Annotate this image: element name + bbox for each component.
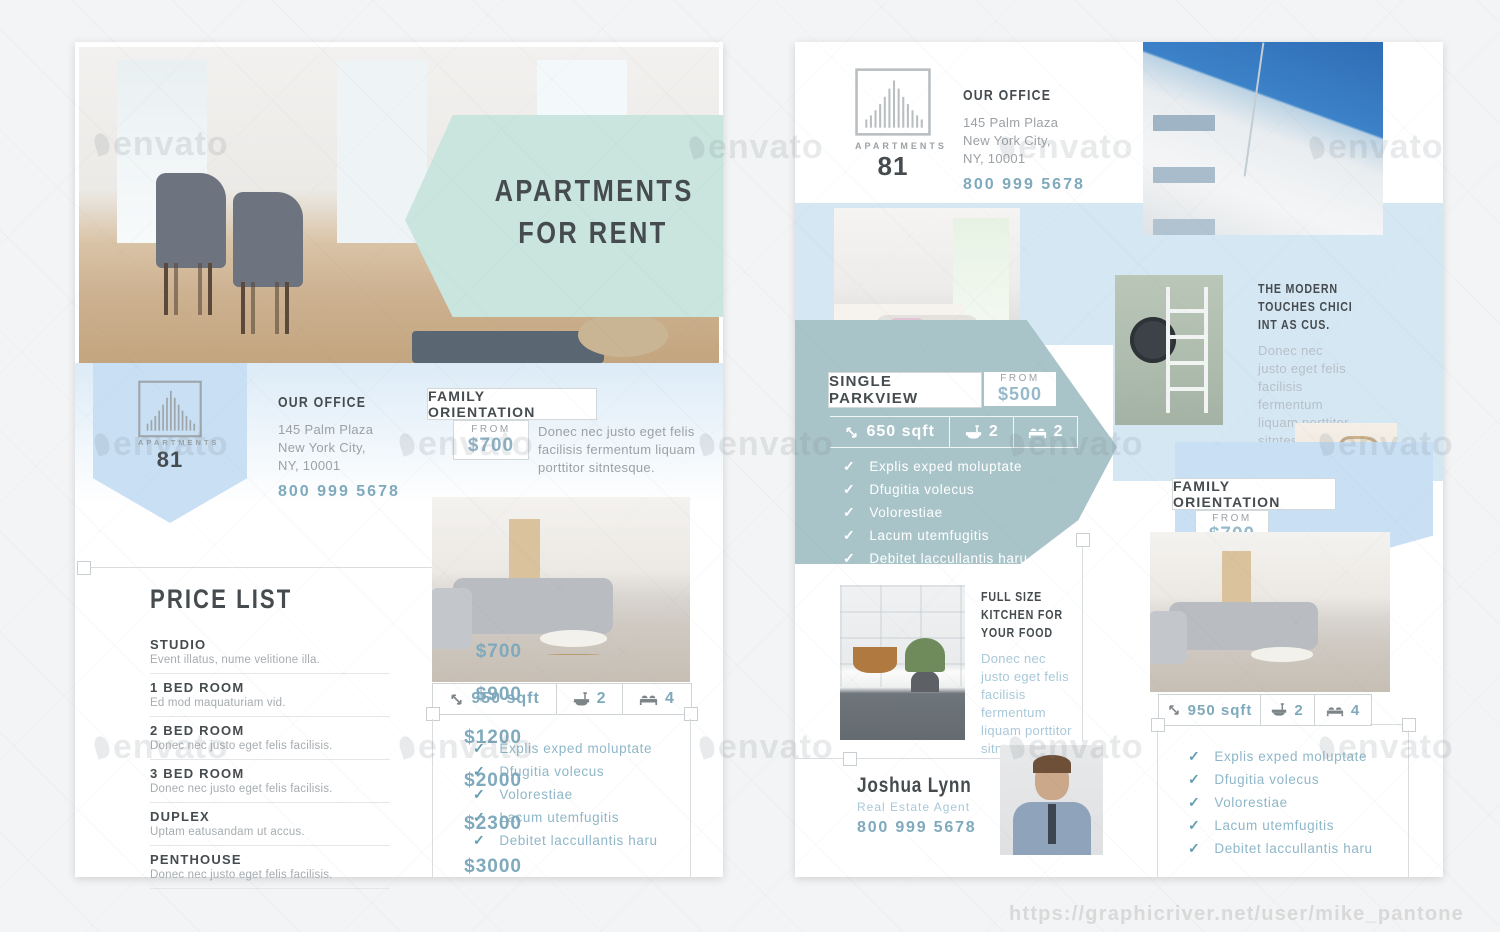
from-price-badge: FROM $700 (453, 420, 529, 460)
office-address-line: New York City, (278, 439, 418, 457)
single-parkview-title: SINGLE PARKVIEW (829, 373, 981, 407)
specs-bar: 950 sqft 2 4 (1158, 694, 1372, 726)
apartments-building-icon (138, 380, 202, 438)
price-row: 2 BED ROOM Donec nec justo eget felis fa… (150, 717, 390, 760)
area-value: 650 sqft (866, 423, 934, 441)
family-orientation-box: FAMILY ORIENTATION (427, 388, 597, 420)
kitchen-body: Donec nec justo eget felis facilisis fer… (981, 650, 1073, 758)
brand-number: 81 (138, 447, 202, 473)
connector-square (843, 752, 857, 766)
connector-square (1402, 718, 1416, 732)
checklist-item: ✓Volorestiae (843, 504, 1028, 521)
left-flyer-page: APARTMENTS FOR RENT APARTMENTS 81 (75, 42, 723, 877)
chair-decor (156, 173, 226, 268)
frame-line (85, 567, 432, 568)
bed-spec: 4 (623, 684, 691, 714)
connector-square (1076, 533, 1090, 547)
area-spec: 650 sqft (830, 417, 950, 447)
chair-decor (233, 192, 303, 287)
bathtub-icon (1271, 703, 1287, 717)
feature-checklist-slate: ✓Explis exped moluptate ✓Dfugitia volecu… (843, 458, 1028, 573)
checklist-item: ✓Explis exped moluptate (843, 458, 1028, 475)
office-info: OUR OFFICE 145 Palm Plaza New York City,… (963, 87, 1113, 194)
frame-line (1157, 730, 1158, 877)
expand-arrow-icon (844, 425, 859, 440)
area-spec: 950 sqft (1159, 695, 1261, 725)
table-decor (540, 630, 607, 647)
frame-line (1408, 730, 1409, 877)
hero-title: APARTMENTS FOR RENT (473, 170, 713, 254)
feature-checklist: ✓Explis exped moluptate ✓Dfugitia volecu… (473, 740, 658, 855)
bath-spec: 2 (950, 417, 1014, 447)
check-icon: ✓ (843, 527, 855, 544)
brand-name: APARTMENTS (855, 141, 931, 151)
agent-info: Joshua Lynn Real Estate Agent 800 999 56… (857, 774, 1017, 837)
checklist-item: ✓Debitet laccullantis haru (843, 550, 1028, 567)
bath-count: 2 (989, 423, 999, 441)
checklist-item: ✓Volorestiae (1188, 794, 1373, 811)
bath-spec: 2 (557, 684, 623, 714)
bed-icon (1326, 704, 1344, 717)
expand-arrow-icon (1167, 703, 1181, 717)
connector-square (77, 561, 91, 575)
kitchen-text-block: FULL SIZE KITCHEN FOR YOUR FOOD Donec ne… (981, 588, 1081, 758)
check-icon: ✓ (1188, 817, 1200, 834)
checklist-item: ✓Dfugitia volecus (843, 481, 1028, 498)
family-description: Donec nec justo eget felis facilisis fer… (538, 423, 710, 477)
area-value: 950 sqft (1188, 702, 1253, 719)
office-phone: 800 999 5678 (278, 483, 418, 501)
preview-canvas: APARTMENTS FOR RENT APARTMENTS 81 (0, 0, 1500, 932)
check-icon: ✓ (843, 458, 855, 475)
family-orientation-box: FAMILY ORIENTATION (1172, 478, 1336, 510)
price-row: STUDIO Event illatus, nume velitione ill… (150, 631, 390, 674)
rug-decor (412, 331, 604, 363)
check-icon: ✓ (843, 481, 855, 498)
from-label: FROM (1000, 373, 1039, 384)
price-row: 3 BED ROOM Donec nec justo eget felis fa… (150, 760, 390, 803)
office-address-line: NY, 10001 (278, 457, 418, 475)
family-orientation-title: FAMILY ORIENTATION (1173, 478, 1335, 510)
checklist-item: ✓Dfugitia volecus (1188, 771, 1373, 788)
agent-role: Real Estate Agent (857, 800, 1017, 814)
frame-line (1082, 539, 1083, 742)
hero-title-line1: APARTMENTS (495, 170, 692, 212)
frame-line (690, 719, 691, 877)
office-address-line: New York City, (963, 132, 1113, 150)
office-heading: OUR OFFICE (278, 394, 366, 411)
check-icon: ✓ (843, 550, 855, 567)
apartment-interior-photo (432, 497, 690, 682)
from-price: $500 (998, 384, 1042, 405)
bath-count: 2 (597, 690, 607, 708)
office-address-line: 145 Palm Plaza (278, 421, 418, 439)
right-flyer-page: APARTMENTS 81 OUR OFFICE 145 Palm Plaza … (795, 42, 1443, 877)
specs-bar: 950 sqft 2 4 (432, 683, 692, 715)
building-photo (1143, 42, 1383, 235)
hero-title-line2: FOR RENT (495, 212, 692, 254)
brand-number: 81 (855, 151, 931, 182)
agent-photo (1000, 745, 1103, 855)
author-credit-link[interactable]: https://graphicriver.net/user/mike_panto… (1009, 903, 1464, 926)
checklist-item: ✓Lacum utemfugitis (843, 527, 1028, 544)
office-heading: OUR OFFICE (963, 87, 1051, 104)
check-icon: ✓ (843, 504, 855, 521)
agent-phone: 800 999 5678 (857, 819, 1017, 837)
bath-spec: 2 (1261, 695, 1315, 725)
bed-icon (1028, 425, 1047, 439)
price-row: 1 BED ROOM Ed mod maquaturiam vid. $900 (150, 674, 390, 717)
brand-name: APARTMENTS (138, 438, 202, 447)
apartment-interior-photo (1150, 532, 1390, 692)
from-price-badge: FROM $500 (984, 372, 1056, 406)
clock-shelf-photo (1115, 275, 1223, 425)
checklist-item: ✓Debitet laccullantis haru (1188, 840, 1373, 857)
office-address-line: NY, 10001 (963, 150, 1113, 168)
family-orientation-title: FAMILY ORIENTATION (428, 388, 596, 420)
office-info: OUR OFFICE 145 Palm Plaza New York City,… (278, 394, 418, 501)
bed-count: 4 (665, 690, 675, 708)
ladder-shelf-decor (1166, 287, 1208, 413)
price-row: PENTHOUSE Donec nec justo eget felis fac… (150, 846, 390, 889)
single-parkview-box: SINGLE PARKVIEW (828, 372, 982, 408)
bed-count: 2 (1054, 423, 1064, 441)
bed-icon (639, 692, 658, 706)
check-icon: ✓ (1188, 840, 1200, 857)
brand-logo-large: APARTMENTS 81 (855, 67, 931, 182)
pouf-decor (578, 313, 668, 357)
sofa-decor (453, 578, 613, 634)
checklist-item: ✓Lacum utemfugitis (1188, 817, 1373, 834)
bath-count: 2 (1294, 702, 1303, 719)
bathtub-icon (965, 425, 982, 440)
apartments-building-icon (855, 67, 931, 137)
from-label: FROM (1212, 513, 1251, 524)
check-icon: ✓ (1188, 794, 1200, 811)
specs-bar-slate: 650 sqft 2 2 (830, 416, 1078, 448)
brand-logo-small: APARTMENTS 81 (138, 380, 202, 473)
frame-line (432, 719, 433, 877)
kitchen-detail-photo (840, 585, 965, 740)
connector-square (426, 707, 440, 721)
feature-checklist: ✓Explis exped moluptate ✓Dfugitia volecu… (1188, 748, 1373, 863)
connector-square (1151, 718, 1165, 732)
price-list-title: PRICE LIST (150, 584, 292, 615)
frame-line (795, 758, 1000, 759)
connector-square (684, 707, 698, 721)
check-icon: ✓ (1188, 748, 1200, 765)
from-price: $700 (468, 435, 514, 457)
checklist-item: ✓Explis exped moluptate (1188, 748, 1373, 765)
check-icon: ✓ (1188, 771, 1200, 788)
price-row: DUPLEX Uptam eatusandam ut accus. $2300 (150, 803, 390, 846)
bathtub-icon (573, 692, 590, 707)
office-address-line: 145 Palm Plaza (963, 114, 1113, 132)
bed-count: 4 (1351, 702, 1360, 719)
price-list-section: PRICE LIST STUDIO Event illatus, nume ve… (150, 584, 390, 889)
bed-spec: 2 (1014, 417, 1078, 447)
expand-arrow-icon (449, 692, 464, 707)
office-phone: 800 999 5678 (963, 176, 1113, 194)
agent-name: Joshua Lynn (857, 774, 972, 798)
bed-spec: 4 (1315, 695, 1371, 725)
from-label: FROM (471, 424, 510, 435)
